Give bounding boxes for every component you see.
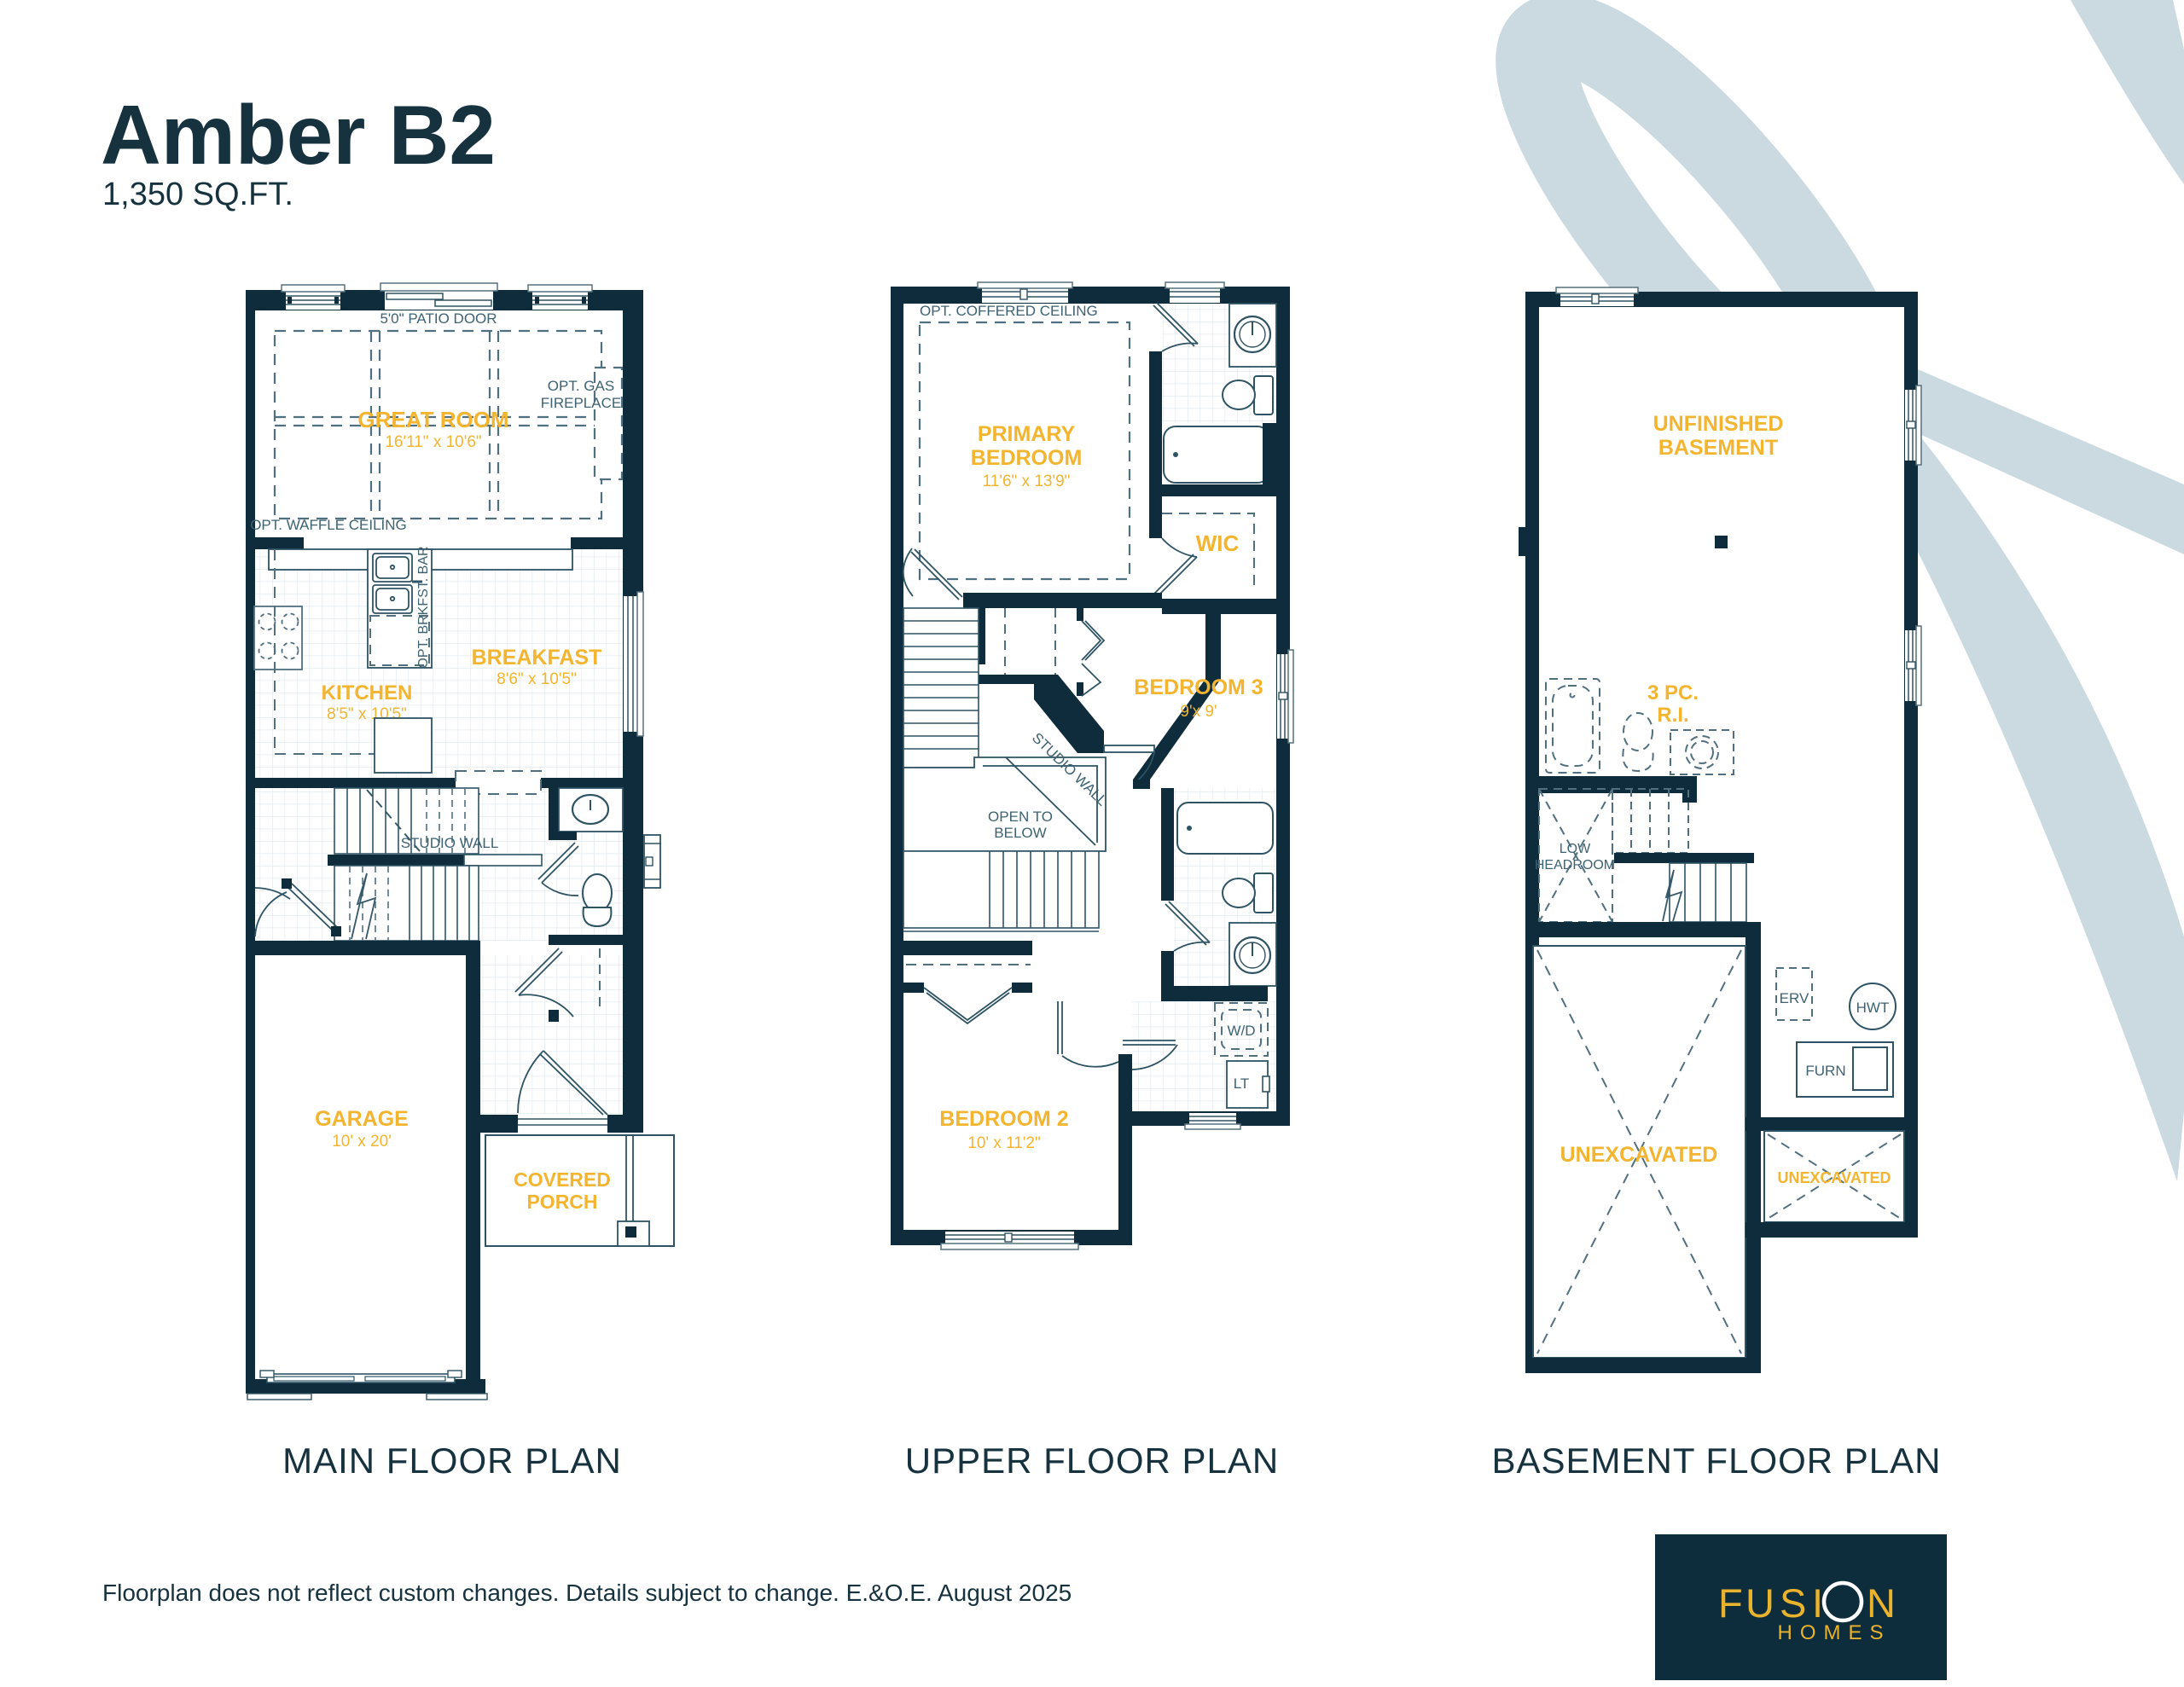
svg-text:LOW: LOW [1560, 842, 1591, 856]
svg-text:U: U [1745, 1580, 1774, 1626]
svg-text:BEDROOM: BEDROOM [971, 446, 1083, 470]
svg-text:LT: LT [1234, 1075, 1250, 1092]
svg-text:GARAGE: GARAGE [315, 1107, 409, 1131]
svg-text:11'6" x 13'9": 11'6" x 13'9" [983, 472, 1071, 490]
svg-text:W/D: W/D [1227, 1023, 1255, 1039]
svg-text:HOMES: HOMES [1777, 1621, 1891, 1644]
svg-text:UNFINISHED: UNFINISHED [1653, 412, 1784, 436]
svg-text:HWT: HWT [1856, 1000, 1890, 1016]
svg-text:OPT. COFFERED CEILING: OPT. COFFERED CEILING [920, 303, 1098, 319]
svg-text:10' x 20': 10' x 20' [332, 1133, 392, 1151]
svg-text:ERV: ERV [1780, 990, 1809, 1006]
svg-text:8'6" x 10'5": 8'6" x 10'5" [497, 670, 577, 688]
svg-text:R.I.: R.I. [1657, 704, 1688, 727]
svg-text:N: N [1867, 1580, 1896, 1626]
svg-text:BEDROOM 3: BEDROOM 3 [1134, 675, 1263, 699]
svg-text:9'x 9': 9'x 9' [1180, 703, 1217, 721]
svg-text:OPEN TO: OPEN TO [988, 809, 1053, 825]
svg-text:KITCHEN: KITCHEN [322, 681, 413, 704]
svg-text:BREAKFAST: BREAKFAST [472, 646, 602, 670]
svg-text:16'11" x 10'6": 16'11" x 10'6" [385, 433, 481, 451]
svg-text:OPT. WAFFLE CEILING: OPT. WAFFLE CEILING [250, 517, 407, 533]
svg-text:BASEMENT: BASEMENT [1658, 436, 1778, 460]
svg-text:GREAT ROOM: GREAT ROOM [357, 407, 508, 432]
svg-text:PRIMARY: PRIMARY [978, 422, 1076, 446]
svg-text:STUDIO WALL: STUDIO WALL [401, 835, 499, 851]
svg-text:UPPER FLOOR PLAN: UPPER FLOOR PLAN [905, 1441, 1279, 1481]
svg-text:Amber B2: Amber B2 [101, 88, 496, 182]
svg-text:OPT. BRKFST. BAR: OPT. BRKFST. BAR [416, 546, 431, 668]
svg-text:PORCH: PORCH [526, 1191, 597, 1213]
svg-text:Floorplan does not reflect cus: Floorplan does not reflect custom change… [102, 1580, 1072, 1606]
svg-text:UNEXCAVATED: UNEXCAVATED [1777, 1169, 1891, 1186]
svg-text:FIREPLACE: FIREPLACE [541, 395, 621, 411]
svg-text:WIC: WIC [1196, 530, 1240, 556]
svg-text:10' x 11'2": 10' x 11'2" [967, 1134, 1040, 1152]
svg-text:I: I [1812, 1580, 1823, 1626]
svg-text:S: S [1780, 1580, 1806, 1626]
svg-text:UNEXCAVATED: UNEXCAVATED [1560, 1143, 1718, 1167]
svg-text:HEADROOM: HEADROOM [1535, 858, 1615, 872]
svg-text:BEDROOM 2: BEDROOM 2 [939, 1107, 1068, 1131]
svg-text:1,350 SQ.FT.: 1,350 SQ.FT. [102, 177, 293, 212]
svg-text:OPT. GAS: OPT. GAS [548, 378, 614, 394]
svg-text:F: F [1718, 1580, 1743, 1626]
svg-text:3 PC.: 3 PC. [1647, 681, 1699, 704]
svg-text:COVERED: COVERED [514, 1168, 611, 1191]
svg-text:5'0" PATIO DOOR: 5'0" PATIO DOOR [380, 310, 497, 327]
svg-text:BASEMENT FLOOR PLAN: BASEMENT FLOOR PLAN [1491, 1441, 1941, 1481]
svg-text:FURN: FURN [1805, 1063, 1845, 1079]
svg-text:MAIN FLOOR PLAN: MAIN FLOOR PLAN [282, 1441, 622, 1481]
svg-text:BELOW: BELOW [994, 825, 1046, 841]
